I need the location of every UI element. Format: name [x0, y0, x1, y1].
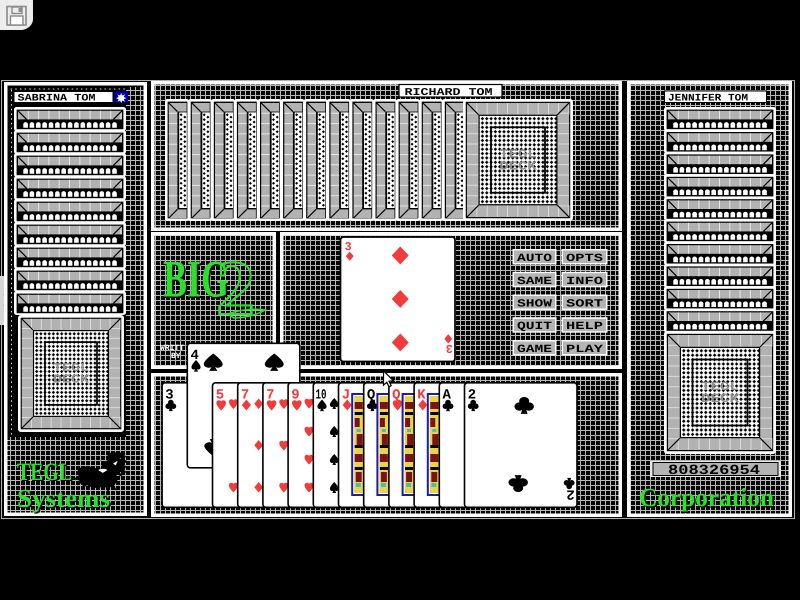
svg-text:SAME: SAME — [517, 276, 553, 288]
svg-text:QUIT: QUIT — [517, 321, 553, 333]
svg-text:Corporation: Corporation — [639, 483, 775, 512]
svg-text:808326954: 808326954 — [668, 463, 760, 479]
svg-text:JENNIFER TOM: JENNIFER TOM — [668, 94, 748, 105]
svg-text:BY: BY — [171, 352, 181, 361]
svg-text:SORT: SORT — [566, 299, 604, 311]
svg-text:INFO: INFO — [566, 276, 604, 288]
svg-text:3: 3 — [446, 341, 453, 355]
svg-text:SABRINA TOM: SABRINA TOM — [18, 94, 96, 105]
svg-text:RICHARD TOM: RICHARD TOM — [405, 87, 493, 99]
svg-text:PLAY: PLAY — [566, 344, 604, 356]
svg-text:HELP: HELP — [566, 321, 604, 333]
svg-text:AUTO: AUTO — [517, 253, 553, 265]
svg-text:OPTS: OPTS — [566, 253, 604, 265]
svg-text:SHOW: SHOW — [517, 299, 553, 311]
svg-text:GAME: GAME — [517, 344, 553, 356]
svg-text:Systems: Systems — [17, 484, 110, 513]
svg-text:3: 3 — [345, 240, 352, 254]
svg-text:TEGL: TEGL — [17, 459, 72, 486]
